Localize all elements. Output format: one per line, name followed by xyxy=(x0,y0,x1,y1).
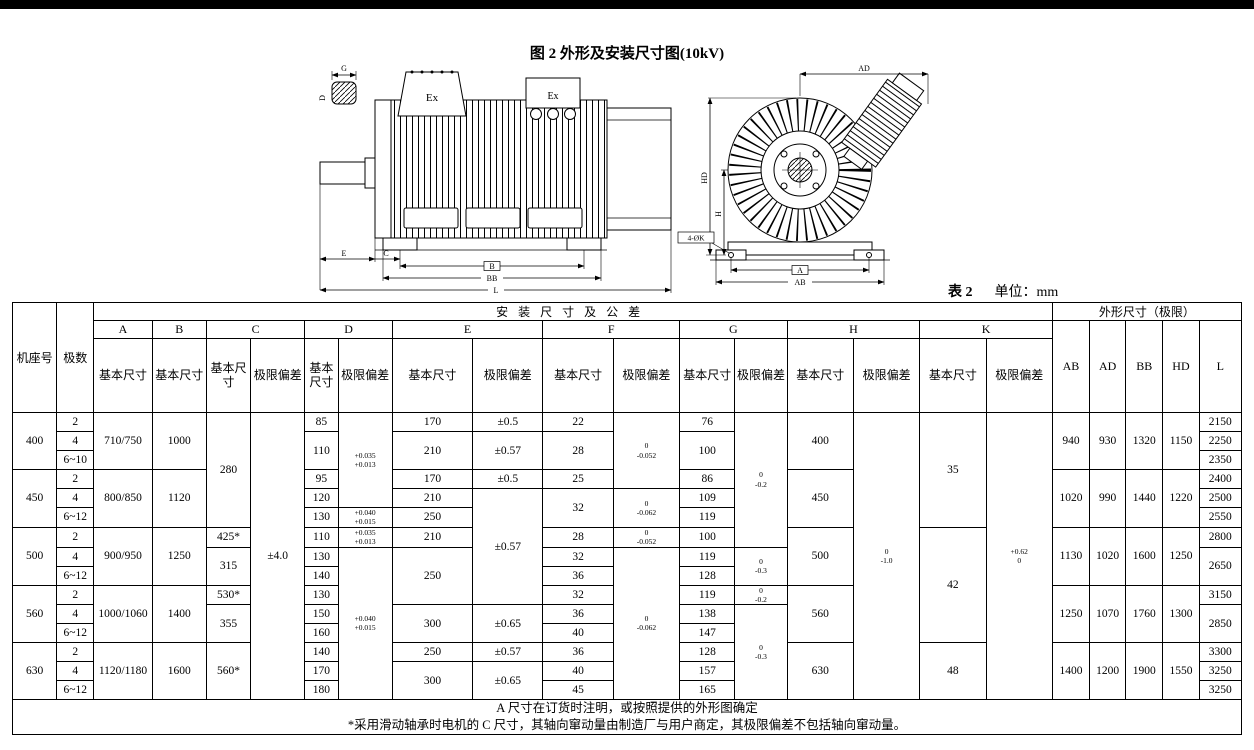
col-header-D: D xyxy=(305,321,392,339)
table-cell: 130 xyxy=(305,547,338,566)
foot-right xyxy=(567,238,601,250)
table-cell: 35 xyxy=(920,413,986,528)
table-cell: 160 xyxy=(305,624,338,643)
dim-label-c: C xyxy=(383,249,388,258)
ex-label-aux: Ex xyxy=(547,91,558,102)
dim-label-a: A xyxy=(797,266,803,275)
table-cell: 128 xyxy=(680,566,735,585)
table-cell: 150 xyxy=(305,605,338,624)
table-cell: 0-0.2 xyxy=(735,585,787,605)
unit-label: 单位：mm xyxy=(995,285,1059,300)
table-cell: +0.035+0.013 xyxy=(338,413,392,508)
table-cell: 157 xyxy=(680,662,735,681)
table-cell: 500 xyxy=(13,527,57,585)
table-cell: 4 xyxy=(57,489,94,508)
col-header-C: C xyxy=(206,321,304,339)
table-cell: 560 xyxy=(13,585,57,643)
table-cell: 4 xyxy=(57,662,94,681)
table-cell: 25 xyxy=(543,470,613,489)
table-cell: 2650 xyxy=(1199,547,1241,585)
table-cell: 36 xyxy=(543,566,613,585)
table-cell: 110 xyxy=(305,432,338,470)
table-cell: 2550 xyxy=(1199,508,1241,528)
ex-label-main: Ex xyxy=(426,92,439,104)
subheader-dev: 极限偏差 xyxy=(735,339,787,413)
table-cell: 138 xyxy=(680,605,735,624)
table-cell: 1400 xyxy=(152,585,206,643)
table-cell: 990 xyxy=(1090,470,1126,528)
subheader-basic: 基本尺寸 xyxy=(680,339,735,413)
dim-label-ad: AD xyxy=(858,64,870,73)
table-cell: 40 xyxy=(543,624,613,643)
table-cell: 0-0.052 xyxy=(613,413,679,489)
table-cell: 40 xyxy=(543,662,613,681)
table-cell: 1250 xyxy=(1163,527,1199,585)
table-cell: 128 xyxy=(680,643,735,662)
table-cell: 1070 xyxy=(1090,585,1126,643)
table-cell: 42 xyxy=(920,527,986,643)
shaft xyxy=(320,162,372,184)
table-cell: 2 xyxy=(57,470,94,489)
table-cell: 119 xyxy=(680,547,735,566)
subheader-dev: 极限偏差 xyxy=(251,339,305,413)
table-cell: 630 xyxy=(787,643,853,700)
table-cell: 2350 xyxy=(1199,451,1241,470)
dim-label-ab: AB xyxy=(794,278,805,287)
dim-label-b: B xyxy=(489,262,494,271)
table-cell: 28 xyxy=(543,527,613,547)
col-header-G: G xyxy=(680,321,788,339)
table-cell: +0.040+0.015 xyxy=(338,547,392,700)
table-cell: 930 xyxy=(1090,413,1126,470)
col-header-outline: 外形尺寸（极限） xyxy=(1052,303,1241,321)
table-cell: 48 xyxy=(920,643,986,700)
top-rule-bar xyxy=(0,0,1254,9)
table-cell: 76 xyxy=(680,413,735,432)
table-cell: 1130 xyxy=(1052,527,1089,585)
table-cell: 1400 xyxy=(1052,643,1089,700)
table-cell: 32 xyxy=(543,489,613,528)
col-header-HD: HD xyxy=(1163,321,1199,413)
table-cell: 300 xyxy=(392,662,472,700)
table-body: 4002710/7501000280±4.085+0.035+0.013170±… xyxy=(13,413,1242,700)
table-cell: 36 xyxy=(543,643,613,662)
table-cell: +0.620 xyxy=(986,413,1052,700)
table-cell: 130 xyxy=(305,508,338,528)
table-cell: 1150 xyxy=(1163,413,1199,470)
dim-label-d: D xyxy=(318,95,327,101)
col-header-poles: 极数 xyxy=(57,303,94,413)
table-cell: 940 xyxy=(1052,413,1089,470)
table-cell: ±4.0 xyxy=(251,413,305,700)
subheader-basic: 基本尺寸 xyxy=(305,339,338,413)
table-cell: 32 xyxy=(543,547,613,566)
table-cell: 0-0.062 xyxy=(613,489,679,528)
subheader-basic: 基本尺寸 xyxy=(392,339,472,413)
col-header-AD: AD xyxy=(1090,321,1126,413)
table-cell: 100 xyxy=(680,527,735,547)
table-cell: 147 xyxy=(680,624,735,643)
subheader-dev: 极限偏差 xyxy=(338,339,392,413)
table-cell: 1300 xyxy=(1163,585,1199,643)
table-cell: 1250 xyxy=(152,527,206,585)
shaft-section-detail xyxy=(332,82,356,104)
table-cell: 280 xyxy=(206,413,250,528)
table-cell: 120 xyxy=(305,489,338,508)
table-cell: 22 xyxy=(543,413,613,432)
table-cell: 1220 xyxy=(1163,470,1199,528)
table-cell: 165 xyxy=(680,681,735,700)
table-cell: 119 xyxy=(680,508,735,528)
table-cell: 0-0.2 xyxy=(735,413,787,548)
table-cell: 4 xyxy=(57,432,94,451)
table-cell: 210 xyxy=(392,527,472,547)
subheader-basic: 基本尺寸 xyxy=(543,339,613,413)
table-cell: 300 xyxy=(392,605,472,643)
table-cell: 1550 xyxy=(1163,643,1199,700)
table-cell: 250 xyxy=(392,547,472,605)
terminal-box-endview xyxy=(836,70,929,176)
dim-label-e: E xyxy=(342,249,347,258)
dim-label-hd: HD xyxy=(700,172,709,184)
col-header-F: F xyxy=(543,321,680,339)
table-cell: 140 xyxy=(305,566,338,585)
col-header-A: A xyxy=(94,321,152,339)
table-cell: 170 xyxy=(305,662,338,681)
table-cell: 210 xyxy=(392,432,472,470)
table-cell: 710/750 xyxy=(94,413,152,470)
table-cell: 1600 xyxy=(152,643,206,700)
table-cell: 0-0.062 xyxy=(613,547,679,700)
table-cell: +0.040+0.015 xyxy=(338,508,392,528)
table-cell: 6~12 xyxy=(57,624,94,643)
table-cell: 2 xyxy=(57,527,94,547)
table-cell: ±0.57 xyxy=(473,643,543,662)
table-cell: ±0.65 xyxy=(473,662,543,700)
table-cell: 250 xyxy=(392,643,472,662)
table-cell: 0-1.0 xyxy=(853,413,919,700)
table-cell: 86 xyxy=(680,470,735,489)
table-cell: 180 xyxy=(305,681,338,700)
table-cell: 110 xyxy=(305,527,338,547)
dim-label-h: H xyxy=(714,211,723,217)
table-cell: 2850 xyxy=(1199,605,1241,643)
table-notes: A 尺寸在订货时注明，或按照提供的外形图确定 *采用滑动轴承时电机的 C 尺寸，… xyxy=(13,700,1242,735)
table-cell: 1760 xyxy=(1126,585,1163,643)
subheader-basic: 基本尺寸 xyxy=(920,339,986,413)
table-cell: 6~12 xyxy=(57,681,94,700)
table-cell: 4 xyxy=(57,547,94,566)
subheader-dev: 极限偏差 xyxy=(853,339,919,413)
table-cell: 170 xyxy=(392,413,472,432)
table-cell: ±0.5 xyxy=(473,413,543,432)
table-cell: 119 xyxy=(680,585,735,605)
table-cell: 36 xyxy=(543,605,613,624)
table-cell: 109 xyxy=(680,489,735,508)
table-cell: 800/850 xyxy=(94,470,152,528)
table-caption: 表 2单位：mm xyxy=(948,281,1058,301)
note-sliding-bearing: *采用滑动轴承时电机的 C 尺寸，其轴向窜动量由制造厂与用户商定，其极限偏差不包… xyxy=(13,717,1241,734)
table-cell: 2250 xyxy=(1199,432,1241,451)
table-cell: 28 xyxy=(543,432,613,470)
table-cell: 560* xyxy=(206,643,250,700)
table-cell: 6~12 xyxy=(57,508,94,528)
table-cell: 560 xyxy=(787,585,853,643)
table-cell: 3250 xyxy=(1199,662,1241,681)
dimension-table: 机座号 极数 安装尺寸及公差 外形尺寸（极限） A B C D E F G H … xyxy=(12,302,1242,735)
table-cell: 2500 xyxy=(1199,489,1241,508)
table-cell: 170 xyxy=(392,470,472,489)
table-number: 表 2 xyxy=(948,285,973,300)
table-cell: 3150 xyxy=(1199,585,1241,605)
table-cell: 6~10 xyxy=(57,451,94,470)
end-view xyxy=(678,70,929,287)
table-cell: 355 xyxy=(206,605,250,643)
table-cell: 1020 xyxy=(1052,470,1089,528)
table-cell: ±0.65 xyxy=(473,605,543,643)
table-cell: 400 xyxy=(787,413,853,470)
table-cell: ±0.5 xyxy=(473,470,543,489)
table-cell: 1120/1180 xyxy=(94,643,152,700)
base xyxy=(728,242,872,255)
end-cap xyxy=(607,108,671,230)
table-cell: 1120 xyxy=(152,470,206,528)
table-cell: 0-0.3 xyxy=(735,547,787,585)
table-cell: 2 xyxy=(57,643,94,662)
table-cell: 3250 xyxy=(1199,681,1241,700)
dim-label-g: G xyxy=(341,64,347,73)
subheader-basic: 基本尺寸 xyxy=(94,339,152,413)
table-cell: 450 xyxy=(13,470,57,528)
subheader-basic: 基本尺寸 xyxy=(152,339,206,413)
col-header-L: L xyxy=(1199,321,1241,413)
table-cell: 0-0.3 xyxy=(735,605,787,700)
subheader-basic: 基本尺寸 xyxy=(206,339,250,413)
table-cell: 2 xyxy=(57,413,94,432)
table-cell: 210 xyxy=(392,489,472,508)
table-cell: ±0.57 xyxy=(473,489,543,605)
table-cell: 85 xyxy=(305,413,338,432)
table-cell: 530* xyxy=(206,585,250,605)
table-cell: 1900 xyxy=(1126,643,1163,700)
col-header-AB: AB xyxy=(1052,321,1089,413)
table-cell: 900/950 xyxy=(94,527,152,585)
table-cell: 32 xyxy=(543,585,613,605)
table-cell: 250 xyxy=(392,508,472,528)
table-cell: 1020 xyxy=(1090,527,1126,585)
table-cell: 6~12 xyxy=(57,566,94,585)
col-header-H: H xyxy=(787,321,920,339)
table-cell: 45 xyxy=(543,681,613,700)
subheader-dev: 极限偏差 xyxy=(473,339,543,413)
table-cell: 500 xyxy=(787,527,853,585)
table-cell: 1600 xyxy=(1126,527,1163,585)
note-a-dimension: A 尺寸在订货时注明，或按照提供的外形图确定 xyxy=(13,700,1241,717)
table-cell: 95 xyxy=(305,470,338,489)
table-cell: 100 xyxy=(680,432,735,470)
col-header-E: E xyxy=(392,321,543,339)
table-cell: 2400 xyxy=(1199,470,1241,489)
table-cell: 425* xyxy=(206,527,250,547)
col-header-BB: BB xyxy=(1126,321,1163,413)
motor-drawing: G D Ex Ex E C B BB L AD HD H A AB 4-ØK xyxy=(280,62,980,302)
table-cell: ±0.57 xyxy=(473,432,543,470)
table-cell: 1250 xyxy=(1052,585,1089,643)
table-cell: 2 xyxy=(57,585,94,605)
col-header-frame: 机座号 xyxy=(13,303,57,413)
table-cell: 1320 xyxy=(1126,413,1163,470)
table-cell: 1000 xyxy=(152,413,206,470)
dim-label-l: L xyxy=(494,286,499,295)
motor-drawing-svg: G D Ex Ex E C B BB L AD HD H A AB 4-ØK xyxy=(280,62,980,302)
side-view xyxy=(320,71,671,295)
col-header-B: B xyxy=(152,321,206,339)
table-cell: 1200 xyxy=(1090,643,1126,700)
col-header-install: 安装尺寸及公差 xyxy=(94,303,1053,321)
dim-label-bb: BB xyxy=(487,274,498,283)
table-cell: 1000/1060 xyxy=(94,585,152,643)
col-header-K: K xyxy=(920,321,1053,339)
table-cell: 3300 xyxy=(1199,643,1241,662)
table-cell: 2150 xyxy=(1199,413,1241,432)
table-cell: +0.035+0.013 xyxy=(338,527,392,547)
subheader-dev: 极限偏差 xyxy=(613,339,679,413)
table-cell: 450 xyxy=(787,470,853,528)
table-cell: 1440 xyxy=(1126,470,1163,528)
table-cell: 2800 xyxy=(1199,527,1241,547)
subheader-dev: 极限偏差 xyxy=(986,339,1052,413)
table-cell: 630 xyxy=(13,643,57,700)
dim-label-4ok: 4-ØK xyxy=(687,234,705,243)
figure-title: 图 2 外形及安装尺寸图(10kV) xyxy=(0,42,1254,63)
subheader-basic: 基本尺寸 xyxy=(787,339,853,413)
document-page: 图 2 外形及安装尺寸图(10kV) xyxy=(0,0,1254,750)
table-cell: 4 xyxy=(57,605,94,624)
table-cell: 130 xyxy=(305,585,338,605)
table-cell: 140 xyxy=(305,643,338,662)
table-cell: 0-0.052 xyxy=(613,527,679,547)
table-cell: 400 xyxy=(13,413,57,470)
table-cell: 315 xyxy=(206,547,250,585)
